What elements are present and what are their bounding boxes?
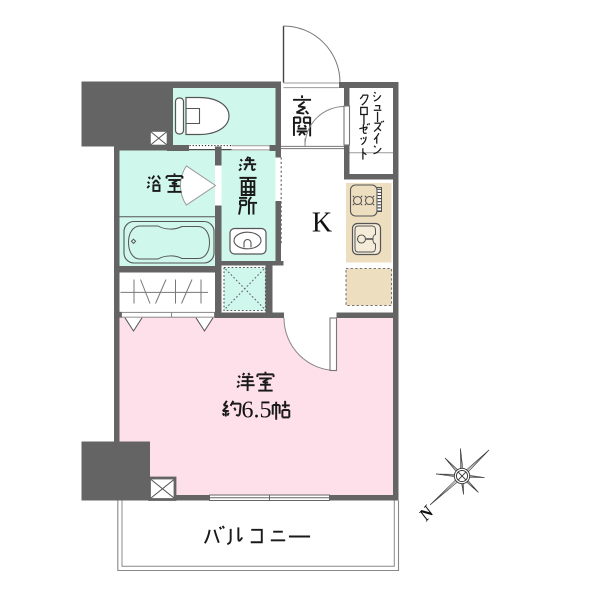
svg-text:6.5: 6.5 bbox=[242, 398, 272, 424]
svg-text:K: K bbox=[312, 208, 332, 239]
